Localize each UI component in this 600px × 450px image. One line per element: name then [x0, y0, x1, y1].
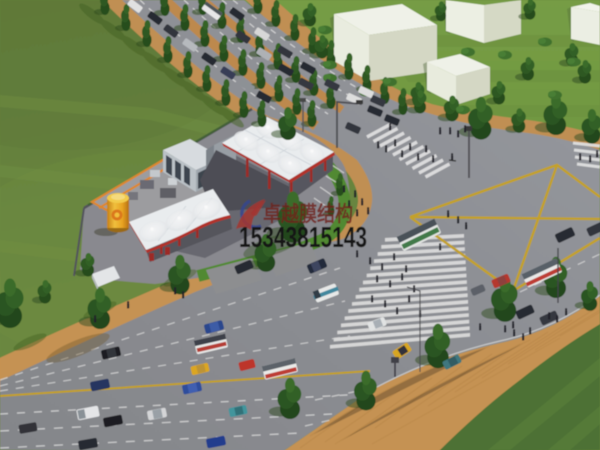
svg-text:15343815143: 15343815143 [239, 222, 367, 254]
